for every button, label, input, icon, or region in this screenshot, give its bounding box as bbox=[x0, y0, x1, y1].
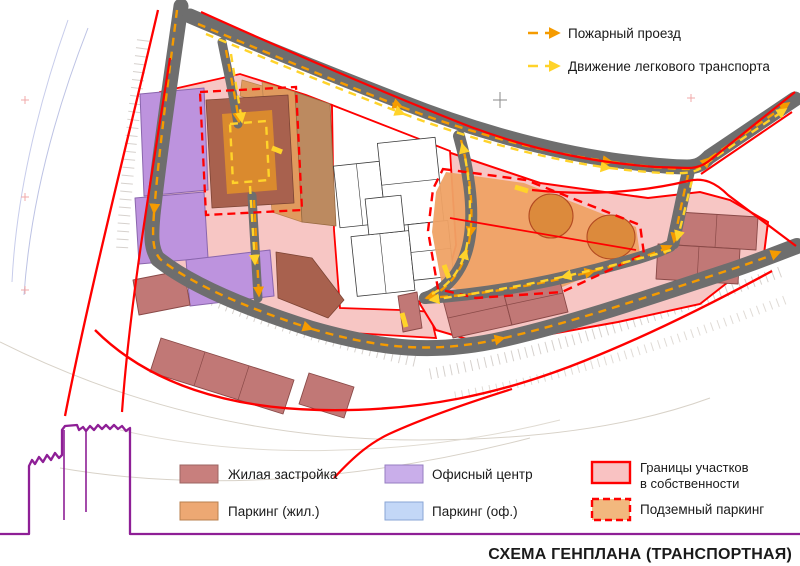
fire-route-label: Пожарный проезд bbox=[568, 26, 681, 41]
office-swatch bbox=[385, 465, 423, 483]
ownership-label-line2: в собственности bbox=[640, 476, 739, 491]
round-structure-2 bbox=[587, 215, 635, 259]
area-legend: Жилая застройка Паркинг (жил.) Офисный ц… bbox=[180, 460, 764, 520]
ownership-label-line1: Границы участков bbox=[640, 460, 749, 475]
boundary-right-upper bbox=[701, 112, 792, 174]
parking-residential-label: Паркинг (жил.) bbox=[228, 504, 320, 519]
genplan-transport-scheme: Пожарный проезд Движение легкового транс… bbox=[0, 0, 800, 566]
parking-office-swatch bbox=[385, 502, 423, 520]
residential-label: Жилая застройка bbox=[228, 467, 338, 482]
parking-residential-swatch bbox=[180, 502, 218, 520]
route-legend: Пожарный проезд Движение легкового транс… bbox=[528, 26, 770, 74]
ownership-swatch bbox=[592, 462, 630, 483]
page-title: СХЕМА ГЕНПЛАНА (ТРАНСПОРТНАЯ) bbox=[488, 546, 792, 563]
underground-parking-label: Подземный паркинг bbox=[640, 502, 764, 517]
round-structure-1 bbox=[529, 194, 573, 238]
car-route-label: Движение легкового транспорта bbox=[568, 59, 770, 74]
benchmark-mark bbox=[493, 92, 507, 108]
office-label: Офисный центр bbox=[432, 467, 533, 482]
residential-swatch bbox=[180, 465, 218, 483]
site-plan-map: Пожарный проезд Движение легкового транс… bbox=[0, 0, 800, 566]
parking-office-label: Паркинг (оф.) bbox=[432, 504, 518, 519]
underground-parking-swatch bbox=[592, 499, 630, 520]
